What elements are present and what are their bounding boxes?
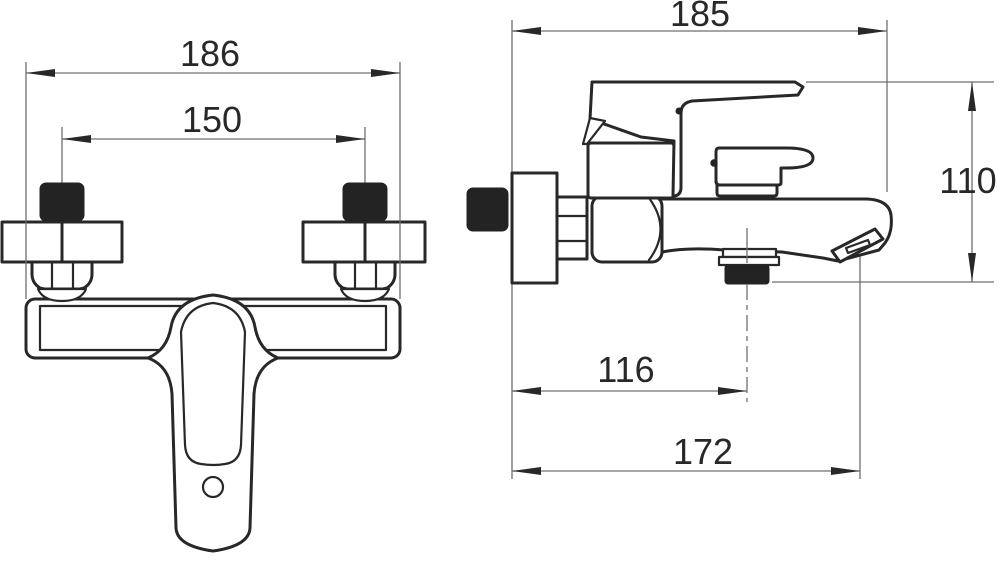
hex-nut-right	[335, 262, 395, 289]
dimension-side-overall-depth: 185	[512, 0, 887, 35]
dim-110-label: 110	[939, 160, 996, 201]
lever-elbow-dot	[676, 108, 682, 114]
outlet-flange-upper	[723, 249, 776, 257]
front-view: 186 150	[2, 33, 425, 551]
lever-back-tip	[583, 118, 605, 144]
dimension-side-height: 110	[939, 82, 996, 282]
temperature-indicator-dot	[203, 477, 223, 497]
arrowhead-left	[512, 27, 541, 35]
diverter-foot	[717, 185, 777, 196]
arrowhead-down	[968, 253, 976, 282]
arrowhead-left	[26, 69, 55, 77]
valve-body	[592, 196, 662, 262]
shower-outlet	[719, 228, 779, 402]
outlet-flange-lower	[719, 257, 779, 265]
knurled-cap-right	[343, 183, 387, 221]
arrowhead-right	[371, 69, 400, 77]
arrowhead-right	[718, 387, 747, 395]
arrowhead-right	[858, 27, 887, 35]
arrowhead-left	[62, 135, 91, 143]
connection-hex-nut	[557, 197, 587, 259]
arrowhead-right	[336, 135, 365, 143]
wall-stud-knurled	[467, 188, 508, 231]
wall-escutcheon-plate	[512, 173, 557, 283]
diverter-knob	[711, 148, 813, 196]
knob-pivot-dot	[711, 160, 717, 166]
arrowhead-left	[512, 387, 541, 395]
dim-186-label: 186	[180, 33, 240, 74]
arrowhead-left	[512, 467, 541, 475]
dim-172-label: 172	[673, 431, 733, 472]
shower-outlet-thread	[725, 265, 769, 284]
dimension-shower-outlet-offset: 116	[512, 349, 747, 395]
dim-185-label: 185	[670, 0, 730, 34]
faucet-drawing-canvas: 186 150	[0, 0, 1000, 563]
front-right-connection	[303, 183, 425, 301]
side-wall-connection	[467, 173, 587, 283]
valve-body-outline	[592, 196, 662, 262]
dimension-front-connection-spacing: 150	[62, 99, 365, 143]
dim-116-label: 116	[597, 349, 654, 390]
front-left-connection	[2, 183, 122, 301]
knurled-cap-left	[40, 183, 84, 221]
dimension-spout-reach: 172	[512, 431, 860, 475]
cartridge-housing	[588, 143, 674, 198]
side-view: 185 110 116 172	[467, 0, 997, 479]
technical-drawing-page: 186 150	[0, 0, 1000, 563]
dim-150-label: 150	[182, 99, 242, 140]
hex-nut-left	[32, 262, 92, 289]
diverter-body	[716, 148, 813, 185]
arrowhead-up	[968, 82, 976, 111]
arrowhead-right	[831, 467, 860, 475]
dimension-front-overall-width: 186	[26, 33, 400, 77]
